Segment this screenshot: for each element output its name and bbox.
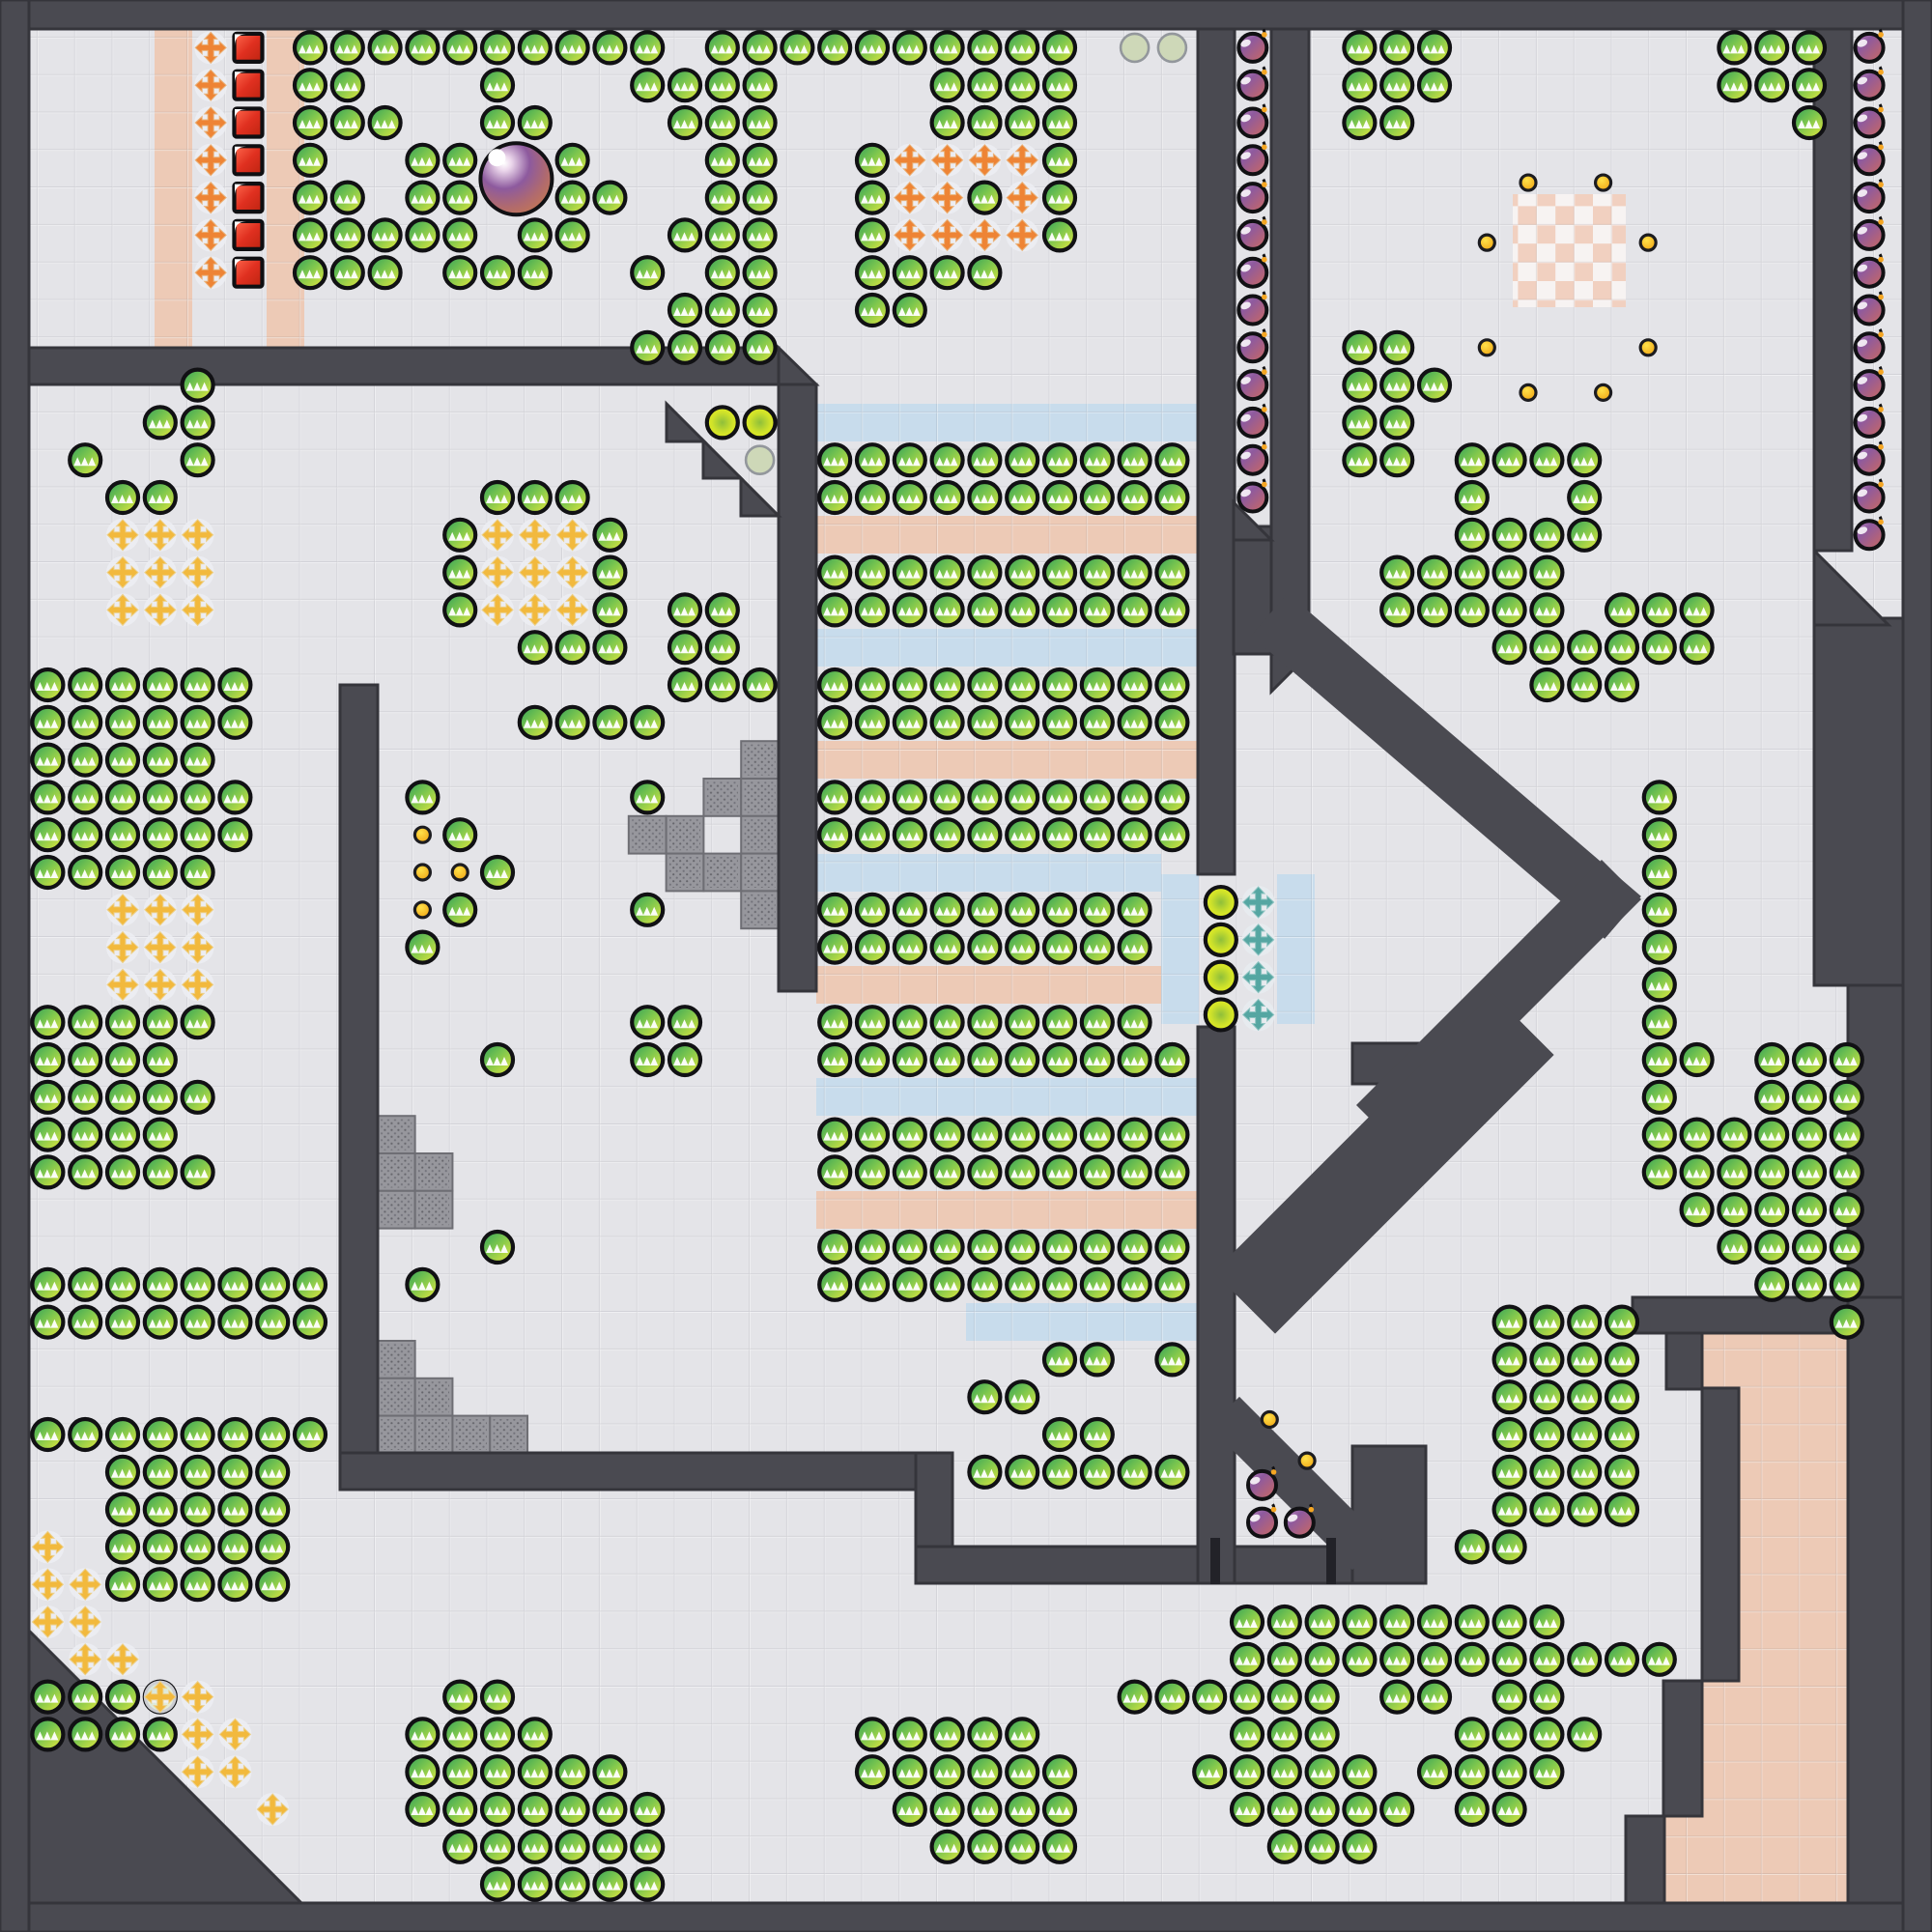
green-pellet-icon <box>557 219 588 250</box>
green-pellet-icon <box>1494 1344 1525 1375</box>
green-pellet-icon <box>257 1457 288 1488</box>
green-pellet-icon <box>1606 1344 1637 1375</box>
green-pellet-icon <box>107 1269 138 1300</box>
green-pellet-icon <box>969 895 1000 925</box>
green-pellet-icon <box>219 1269 250 1300</box>
green-pellet-icon <box>632 32 663 63</box>
green-pellet-icon <box>1794 1194 1825 1225</box>
green-pellet-icon <box>407 1719 438 1749</box>
green-pellet-icon <box>1606 1494 1637 1525</box>
green-pellet-icon <box>1344 407 1375 438</box>
green-pellet-icon <box>745 32 776 63</box>
green-pellet-icon <box>1307 1756 1338 1787</box>
green-pellet-icon <box>1120 1269 1151 1300</box>
green-pellet-icon <box>32 781 63 812</box>
green-pellet-icon <box>32 1120 63 1151</box>
orange-cross-icon <box>894 218 926 251</box>
green-pellet-icon <box>70 1682 100 1713</box>
green-pellet-icon <box>145 781 176 812</box>
green-pellet-icon <box>1344 70 1375 100</box>
green-pellet-icon <box>1794 1269 1825 1300</box>
green-pellet-icon <box>745 183 776 213</box>
green-pellet-icon <box>557 707 588 738</box>
green-pellet-icon <box>1832 1269 1862 1300</box>
green-pellet-icon <box>1494 632 1525 663</box>
green-pellet-icon <box>145 1044 176 1075</box>
green-pellet-icon <box>183 1307 213 1338</box>
green-pellet-icon <box>1120 1682 1151 1713</box>
green-pellet-icon <box>1756 1156 1787 1187</box>
green-pellet-icon <box>1531 520 1562 551</box>
green-pellet-icon <box>1156 1269 1187 1300</box>
yellow-green-pellet-icon <box>1206 962 1236 993</box>
green-pellet-icon <box>1644 1044 1675 1075</box>
teal-cross-icon <box>1242 998 1275 1031</box>
green-pellet-icon <box>482 1756 513 1787</box>
green-pellet-icon <box>895 257 925 288</box>
green-pellet-icon <box>707 332 738 363</box>
green-pellet-icon <box>1457 482 1488 513</box>
green-pellet-icon <box>1007 895 1037 925</box>
green-pellet-icon <box>632 1044 663 1075</box>
green-pellet-icon <box>370 257 401 288</box>
green-pellet-icon <box>370 107 401 138</box>
green-pellet-icon <box>1044 1756 1075 1787</box>
green-pellet-icon <box>1644 1007 1675 1037</box>
green-pellet-icon <box>969 1381 1000 1412</box>
green-pellet-icon <box>1044 1269 1075 1300</box>
green-pellet-icon <box>145 707 176 738</box>
gold-cross-icon <box>556 519 589 552</box>
green-pellet-icon <box>1381 407 1412 438</box>
green-pellet-icon <box>969 1269 1000 1300</box>
green-pellet-icon <box>444 257 475 288</box>
green-pellet-icon <box>407 183 438 213</box>
gold-cross-icon <box>218 1718 251 1750</box>
green-pellet-icon <box>1044 707 1075 738</box>
green-pellet-icon <box>1156 1344 1187 1375</box>
green-pellet-icon <box>932 1269 963 1300</box>
green-pellet-icon <box>520 1719 551 1749</box>
gold-cross-icon <box>182 1755 214 1788</box>
green-pellet-icon <box>969 1044 1000 1075</box>
green-pellet-icon <box>183 781 213 812</box>
green-pellet-icon <box>1531 1494 1562 1525</box>
green-pellet-icon <box>669 219 700 250</box>
green-pellet-icon <box>1007 1719 1037 1749</box>
gold-cross-icon <box>144 556 177 589</box>
green-pellet-icon <box>1082 557 1113 588</box>
green-pellet-icon <box>1082 1044 1113 1075</box>
green-pellet-icon <box>969 707 1000 738</box>
green-pellet-icon <box>70 1007 100 1037</box>
green-pellet-icon <box>1120 1156 1151 1187</box>
gold-cross-icon <box>182 931 214 964</box>
green-pellet-icon <box>1082 1344 1113 1375</box>
green-pellet-icon <box>482 1044 513 1075</box>
green-pellet-icon <box>745 332 776 363</box>
green-pellet-icon <box>707 107 738 138</box>
green-pellet-icon <box>107 1156 138 1187</box>
green-pellet-icon <box>557 632 588 663</box>
green-pellet-icon <box>1007 781 1037 812</box>
green-pellet-icon <box>444 1794 475 1825</box>
green-pellet-icon <box>219 819 250 850</box>
green-pellet-icon <box>407 219 438 250</box>
green-pellet-icon <box>482 1794 513 1825</box>
green-pellet-icon <box>969 1457 1000 1488</box>
green-pellet-icon <box>969 183 1000 213</box>
green-pellet-icon <box>482 70 513 100</box>
green-pellet-icon <box>1120 1232 1151 1263</box>
green-pellet-icon <box>1644 857 1675 888</box>
green-pellet-icon <box>857 295 888 326</box>
green-pellet-icon <box>145 857 176 888</box>
green-pellet-icon <box>444 594 475 625</box>
green-pellet-icon <box>70 1419 100 1450</box>
green-pellet-icon <box>70 707 100 738</box>
green-pellet-icon <box>219 1494 250 1525</box>
green-pellet-icon <box>1494 1457 1525 1488</box>
map-svg[interactable] <box>0 0 1932 1932</box>
green-pellet-icon <box>1269 1644 1300 1675</box>
game-board[interactable] <box>0 0 1932 1932</box>
green-pellet-icon <box>1457 1794 1488 1825</box>
green-pellet-icon <box>1156 1156 1187 1187</box>
green-pellet-icon <box>1419 1756 1450 1787</box>
green-pellet-icon <box>32 1719 63 1749</box>
green-pellet-icon <box>183 407 213 438</box>
gold-cross-icon <box>106 519 139 552</box>
green-pellet-icon <box>1007 1269 1037 1300</box>
green-pellet-icon <box>969 1832 1000 1862</box>
green-pellet-icon <box>1719 1120 1749 1151</box>
gold-cross-icon <box>31 1605 64 1638</box>
yellow-green-pellet-icon <box>1206 924 1236 955</box>
green-pellet-icon <box>969 781 1000 812</box>
green-pellet-icon <box>332 107 363 138</box>
green-pellet-icon <box>1120 594 1151 625</box>
green-pellet-icon <box>1381 32 1412 63</box>
green-pellet-icon <box>257 1419 288 1450</box>
orange-cross-icon <box>194 69 227 101</box>
green-pellet-icon <box>482 257 513 288</box>
pale-pellet-icon <box>1158 34 1186 62</box>
green-pellet-icon <box>70 1719 100 1749</box>
pale-pellet-icon <box>746 446 774 474</box>
green-pellet-icon <box>32 1307 63 1338</box>
green-pellet-icon <box>932 819 963 850</box>
green-pellet-icon <box>632 332 663 363</box>
green-pellet-icon <box>145 1307 176 1338</box>
green-pellet-icon <box>669 332 700 363</box>
green-pellet-icon <box>444 520 475 551</box>
green-pellet-icon <box>444 895 475 925</box>
green-pellet-icon <box>1082 781 1113 812</box>
green-pellet-icon <box>1494 444 1525 475</box>
green-pellet-icon <box>1120 1457 1151 1488</box>
red-block-icon <box>234 221 262 249</box>
green-pellet-icon <box>669 669 700 700</box>
green-pellet-icon <box>1156 1457 1187 1488</box>
green-pellet-icon <box>70 745 100 776</box>
green-pellet-icon <box>444 183 475 213</box>
green-pellet-icon <box>520 707 551 738</box>
green-pellet-icon <box>557 1756 588 1787</box>
green-pellet-icon <box>107 781 138 812</box>
green-pellet-icon <box>1044 557 1075 588</box>
green-pellet-icon <box>407 1756 438 1787</box>
green-pellet-icon <box>1044 819 1075 850</box>
green-pellet-icon <box>107 857 138 888</box>
green-pellet-icon <box>1194 1682 1225 1713</box>
green-pellet-icon <box>895 444 925 475</box>
green-pellet-icon <box>1569 669 1600 700</box>
green-pellet-icon <box>857 594 888 625</box>
green-pellet-icon <box>1494 594 1525 625</box>
green-pellet-icon <box>183 707 213 738</box>
player-ball[interactable] <box>480 143 552 214</box>
green-pellet-icon <box>183 1269 213 1300</box>
green-pellet-icon <box>520 32 551 63</box>
green-pellet-icon <box>632 895 663 925</box>
green-pellet-icon <box>332 257 363 288</box>
green-pellet-icon <box>1832 1120 1862 1151</box>
yellow-dot-icon <box>414 827 430 842</box>
green-pellet-icon <box>1531 1644 1562 1675</box>
green-pellet-icon <box>1494 1381 1525 1412</box>
green-pellet-icon <box>183 857 213 888</box>
gold-cross-icon <box>519 556 552 589</box>
gold-cross-icon <box>106 1643 139 1676</box>
yellow-dot-icon <box>1479 235 1494 250</box>
green-pellet-icon <box>1606 1457 1637 1488</box>
green-pellet-icon <box>145 1082 176 1113</box>
yellow-green-pellet-icon <box>1206 887 1236 918</box>
green-pellet-icon <box>145 1419 176 1450</box>
green-pellet-icon <box>107 1419 138 1450</box>
green-pellet-icon <box>632 70 663 100</box>
green-pellet-icon <box>1756 1194 1787 1225</box>
red-block-icon <box>234 109 262 137</box>
red-block-icons <box>234 34 262 287</box>
red-block-icon <box>234 34 262 62</box>
green-pellet-icon <box>1719 70 1749 100</box>
green-pellet-icon <box>669 295 700 326</box>
green-pellet-icon <box>1156 444 1187 475</box>
green-pellet-icon <box>857 1269 888 1300</box>
green-pellet-icon <box>107 1682 138 1713</box>
green-pellet-icon <box>932 669 963 700</box>
green-pellet-icon <box>70 857 100 888</box>
green-pellet-icon <box>1756 1120 1787 1151</box>
green-pellet-icon <box>819 669 850 700</box>
green-pellet-icon <box>1756 32 1787 63</box>
green-pellet-icon <box>1007 707 1037 738</box>
green-pellet-icon <box>1156 707 1187 738</box>
pale-pellet-icon <box>1121 34 1149 62</box>
green-pellet-icon <box>1344 32 1375 63</box>
green-pellet-icon <box>295 107 326 138</box>
green-pellet-icon <box>1120 819 1151 850</box>
green-pellet-icon <box>219 707 250 738</box>
green-pellet-icon <box>1494 1644 1525 1675</box>
green-pellet-icon <box>895 482 925 513</box>
green-pellet-icon <box>969 1756 1000 1787</box>
green-pellet-icon <box>707 594 738 625</box>
green-pellet-icon <box>1494 520 1525 551</box>
green-pellet-icon <box>32 819 63 850</box>
gold-cross-icon <box>106 968 139 1001</box>
green-pellet-icon <box>1794 32 1825 63</box>
green-pellet-icon <box>107 482 138 513</box>
gold-cross-icon <box>31 1530 64 1563</box>
green-pellet-icon <box>1569 632 1600 663</box>
green-pellet-icon <box>1682 1194 1713 1225</box>
green-pellet-icon <box>1044 1007 1075 1037</box>
green-pellet-icon <box>557 145 588 176</box>
green-pellet-icon <box>1531 594 1562 625</box>
green-pellet-icon <box>932 1794 963 1825</box>
green-pellet-icon <box>520 482 551 513</box>
green-pellet-icon <box>183 1156 213 1187</box>
green-pellet-icon <box>895 819 925 850</box>
gold-cross-icon <box>144 931 177 964</box>
green-pellet-icon <box>1082 1419 1113 1450</box>
green-pellet-icon <box>1494 1794 1525 1825</box>
gold-cross-icon <box>481 519 514 552</box>
green-pellet-icon <box>1644 1082 1675 1113</box>
green-pellet-icon <box>32 1082 63 1113</box>
green-pellet-icon <box>819 895 850 925</box>
green-pellet-icon <box>219 1531 250 1562</box>
green-pellet-icon <box>32 745 63 776</box>
green-pellet-icon <box>1644 594 1675 625</box>
green-pellet-icon <box>895 1719 925 1749</box>
green-pellet-icon <box>1531 1606 1562 1637</box>
green-pellet-icon <box>107 1457 138 1488</box>
green-pellet-icon <box>70 819 100 850</box>
green-pellet-icon <box>107 707 138 738</box>
green-pellet-icon <box>1007 1044 1037 1075</box>
green-pellet-icon <box>707 632 738 663</box>
gold-cross-icon <box>69 1568 101 1601</box>
green-pellet-icon <box>594 1869 625 1900</box>
green-pellet-icon <box>1307 1832 1338 1862</box>
green-pellet-icon <box>1044 1419 1075 1450</box>
green-pellet-icon <box>1457 520 1488 551</box>
green-pellet-icon <box>219 1569 250 1600</box>
gold-cross-icon <box>144 968 177 1001</box>
green-pellet-icon <box>1156 1044 1187 1075</box>
green-pellet-icon <box>295 1307 326 1338</box>
orange-cross-icon <box>931 144 964 177</box>
green-pellet-icon <box>969 1232 1000 1263</box>
green-pellet-icon <box>1156 482 1187 513</box>
green-pellet-icon <box>1082 482 1113 513</box>
green-pellet-icon <box>295 32 326 63</box>
green-pellet-icon <box>1082 1269 1113 1300</box>
green-pellet-icon <box>1307 1719 1338 1749</box>
gold-cross-icon <box>519 593 552 626</box>
green-pellet-icon <box>1531 1307 1562 1338</box>
green-pellet-icon <box>70 669 100 700</box>
yellow-dot-icon <box>1520 384 1536 400</box>
green-pellet-icon <box>1531 632 1562 663</box>
green-pellet-icon <box>332 70 363 100</box>
green-pellet-icon <box>257 1307 288 1338</box>
green-pellet-icon <box>145 1531 176 1562</box>
green-pellet-icon <box>70 1120 100 1151</box>
green-pellet-icon <box>1644 781 1675 812</box>
green-pellet-icon <box>1044 482 1075 513</box>
green-pellet-icon <box>257 1531 288 1562</box>
green-pellet-icon <box>1232 1719 1263 1749</box>
green-pellet-icon <box>895 1120 925 1151</box>
green-pellet-icon <box>1156 594 1187 625</box>
green-pellet-icon <box>1531 669 1562 700</box>
green-pellet-icon <box>1044 895 1075 925</box>
orange-cross-icon <box>194 31 227 64</box>
green-pellet-icon <box>594 1832 625 1862</box>
green-pellet-icon <box>857 669 888 700</box>
green-pellet-icon <box>407 32 438 63</box>
green-pellet-icon <box>1419 70 1450 100</box>
green-pellet-icon <box>857 257 888 288</box>
green-pellet-icon <box>819 1120 850 1151</box>
green-pellet-icon <box>219 1419 250 1450</box>
green-pellet-icon <box>1569 1381 1600 1412</box>
green-pellet-icon <box>295 70 326 100</box>
green-pellet-icon <box>1832 1156 1862 1187</box>
gold-cross-icon <box>556 593 589 626</box>
green-pellet-icon <box>819 594 850 625</box>
green-pellet-icon <box>895 557 925 588</box>
green-pellet-icon <box>1457 444 1488 475</box>
green-pellet-icon <box>370 219 401 250</box>
green-pellet-icon <box>1531 1719 1562 1749</box>
green-pellet-icon <box>969 557 1000 588</box>
green-pellet-icon <box>1531 557 1562 588</box>
green-pellet-icon <box>819 1044 850 1075</box>
green-pellet-icon <box>895 1232 925 1263</box>
gold-cross-icon <box>556 556 589 589</box>
green-pellet-icon <box>1794 1082 1825 1113</box>
green-pellet-icon <box>295 257 326 288</box>
green-pellet-icon <box>857 1232 888 1263</box>
green-pellet-icon <box>1044 781 1075 812</box>
green-pellet-icon <box>557 32 588 63</box>
green-pellet-icon <box>969 70 1000 100</box>
green-pellet-icon <box>969 1719 1000 1749</box>
gold-cross-icon <box>106 931 139 964</box>
green-pellet-icon <box>1044 1344 1075 1375</box>
green-pellet-icon <box>781 32 812 63</box>
green-pellet-icon <box>1344 107 1375 138</box>
orange-cross-icon <box>194 182 227 214</box>
green-pellet-icon <box>895 295 925 326</box>
green-pellet-icon <box>1794 70 1825 100</box>
green-pellet-icon <box>932 932 963 963</box>
green-pellet-icon <box>1494 1494 1525 1525</box>
green-pellet-icon <box>1007 444 1037 475</box>
green-pellet-icon <box>1719 1194 1749 1225</box>
gold-cross-icon <box>106 593 139 626</box>
green-pellet-icon <box>520 1794 551 1825</box>
yellow-dot-icon <box>1520 175 1536 190</box>
yellow-dot-icon <box>1262 1411 1277 1427</box>
gold-cross-icon <box>182 968 214 1001</box>
